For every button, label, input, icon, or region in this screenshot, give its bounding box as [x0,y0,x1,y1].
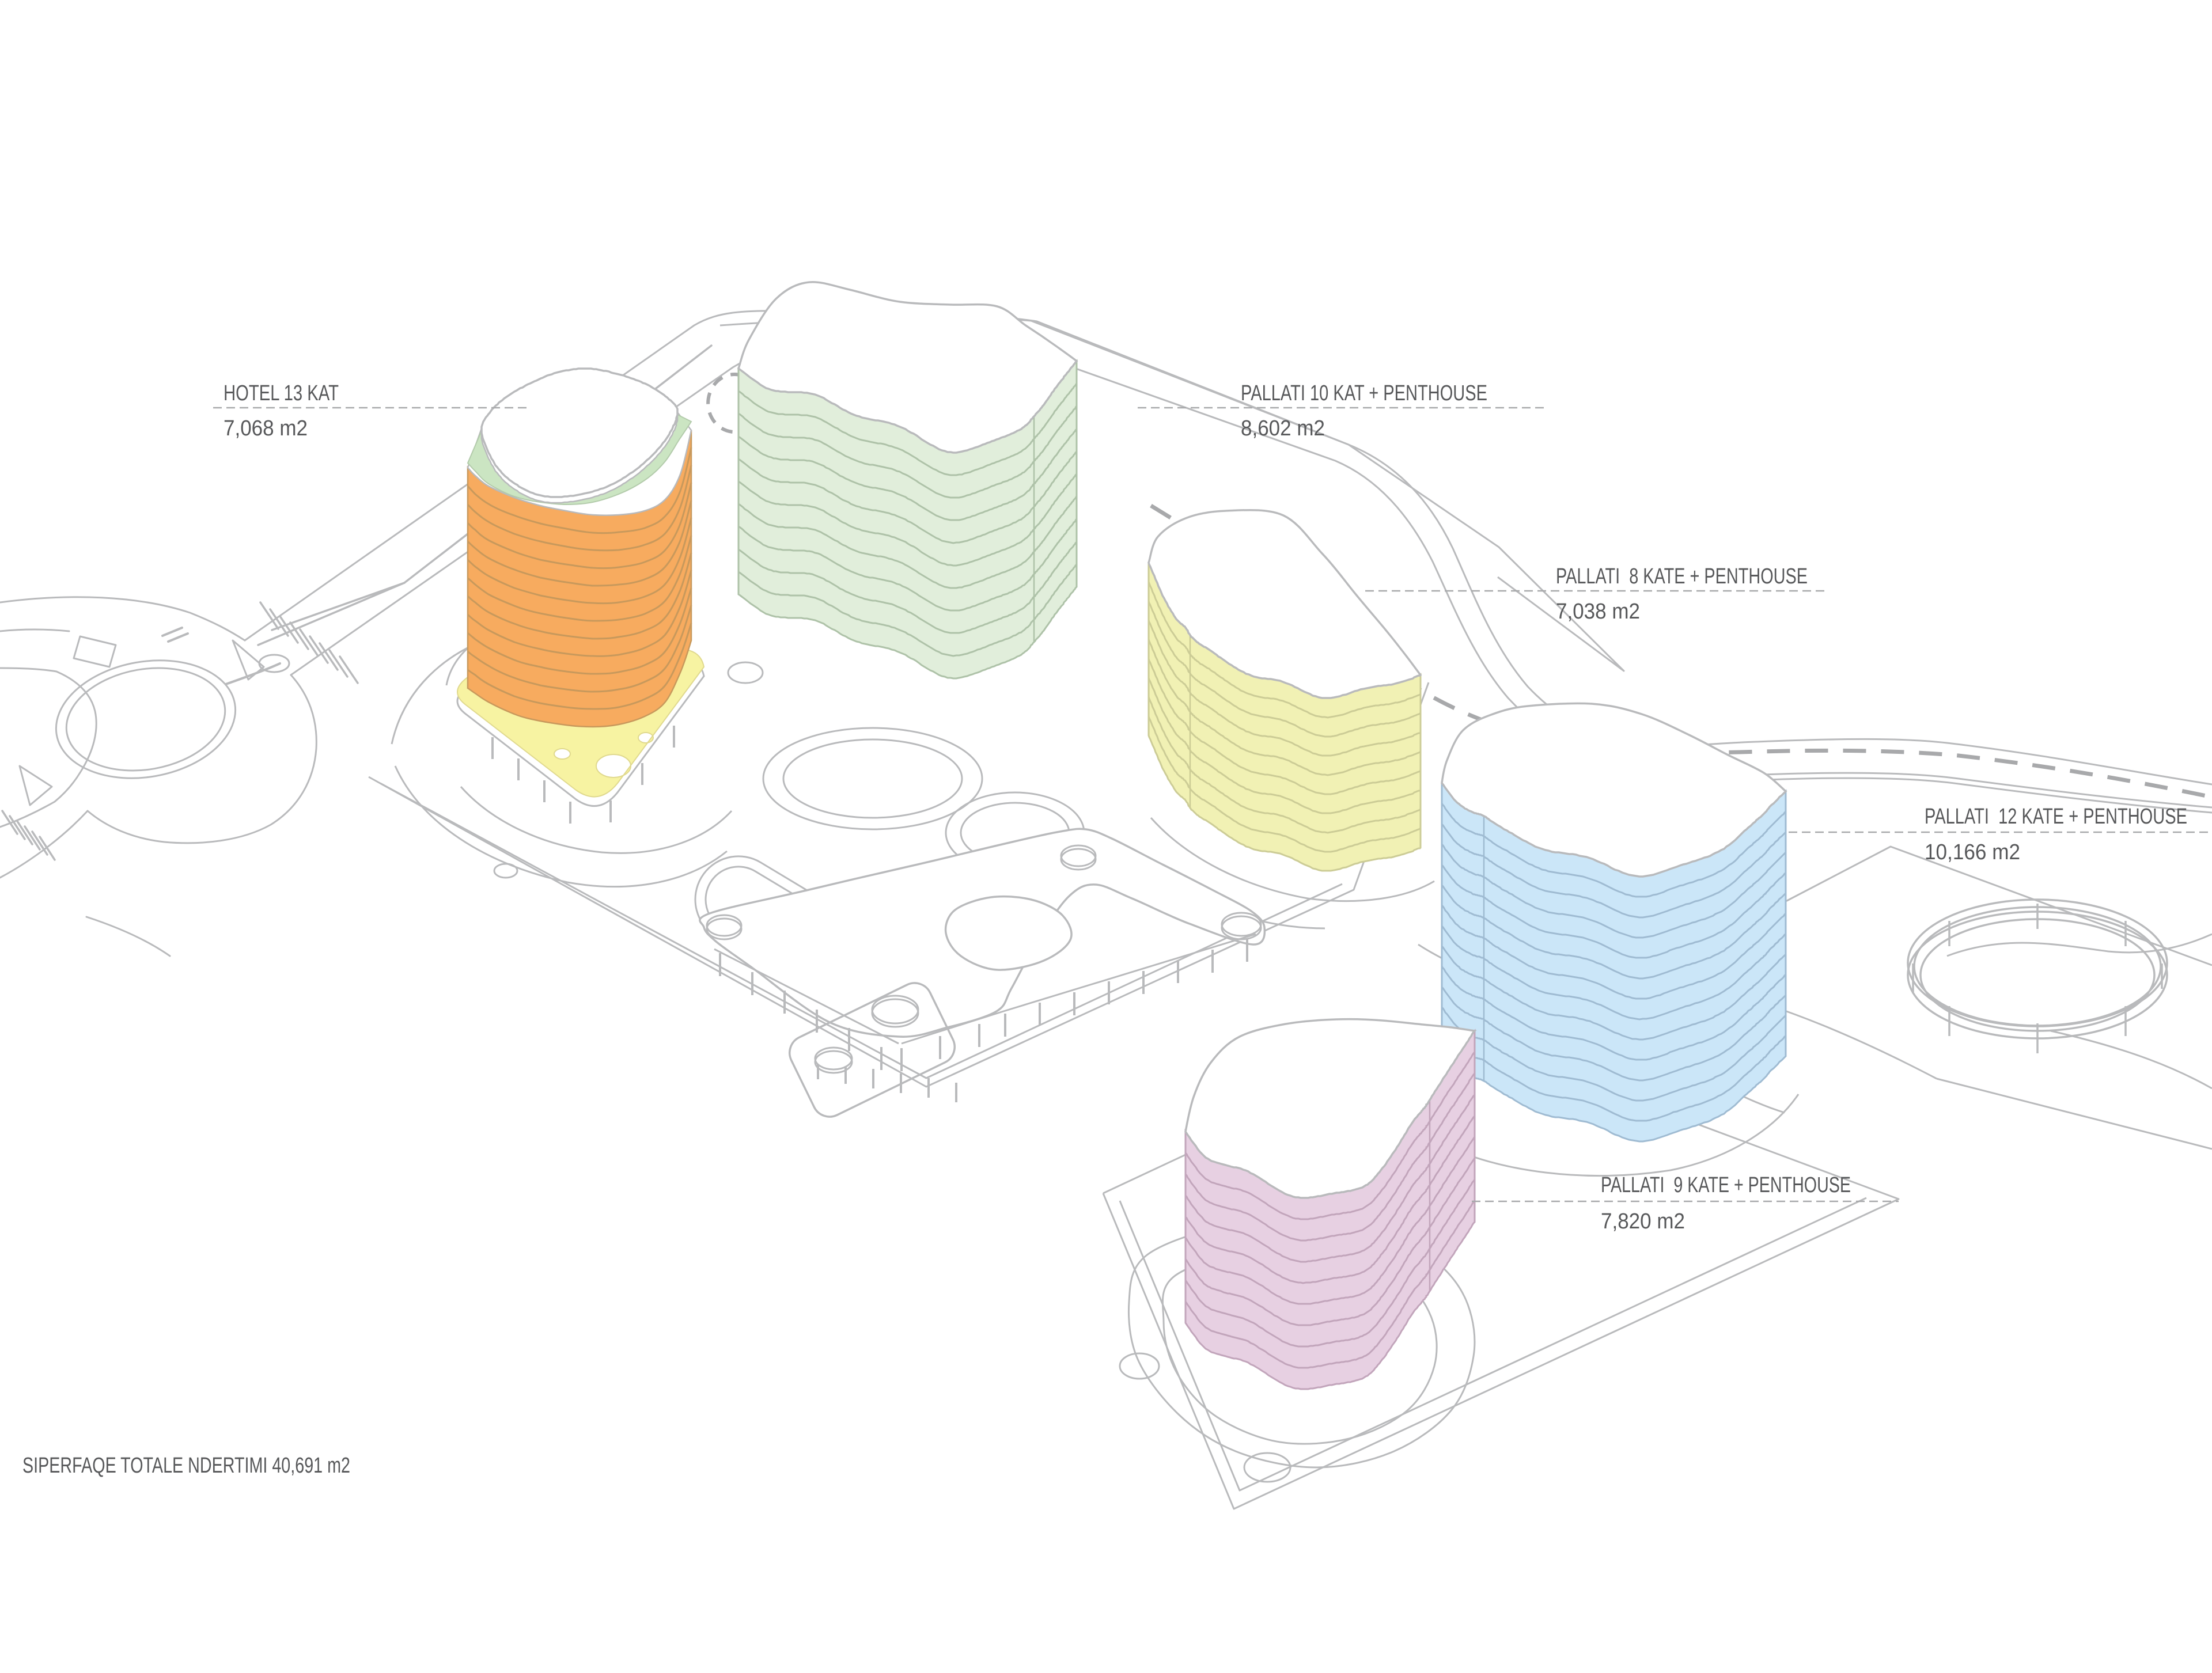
svg-text:7,038 m2: 7,038 m2 [1556,600,1640,624]
svg-text:SIPERFAQE TOTALE NDERTIMI 40,6: SIPERFAQE TOTALE NDERTIMI 40,691 m2 [22,1454,350,1478]
svg-text:PALLATI 12 KATE + PENTHOUSE: PALLATI 12 KATE + PENTHOUSE [1925,805,2187,829]
svg-text:7,068 m2: 7,068 m2 [224,416,308,441]
svg-text:PALLATI 8 KATE + PENTHOUSE: PALLATI 8 KATE + PENTHOUSE [1556,564,1808,589]
svg-text:HOTEL 13 KAT: HOTEL 13 KAT [224,381,339,405]
svg-text:7,820 m2: 7,820 m2 [1601,1209,1685,1234]
svg-text:8,602 m2: 8,602 m2 [1241,416,1325,441]
svg-text:10,166 m2: 10,166 m2 [1925,840,2020,864]
svg-text:PALLATI 10 KAT + PENTHOUSE: PALLATI 10 KAT + PENTHOUSE [1241,381,1487,405]
svg-text:PALLATI 9 KATE + PENTHOUSE: PALLATI 9 KATE + PENTHOUSE [1601,1173,1851,1197]
